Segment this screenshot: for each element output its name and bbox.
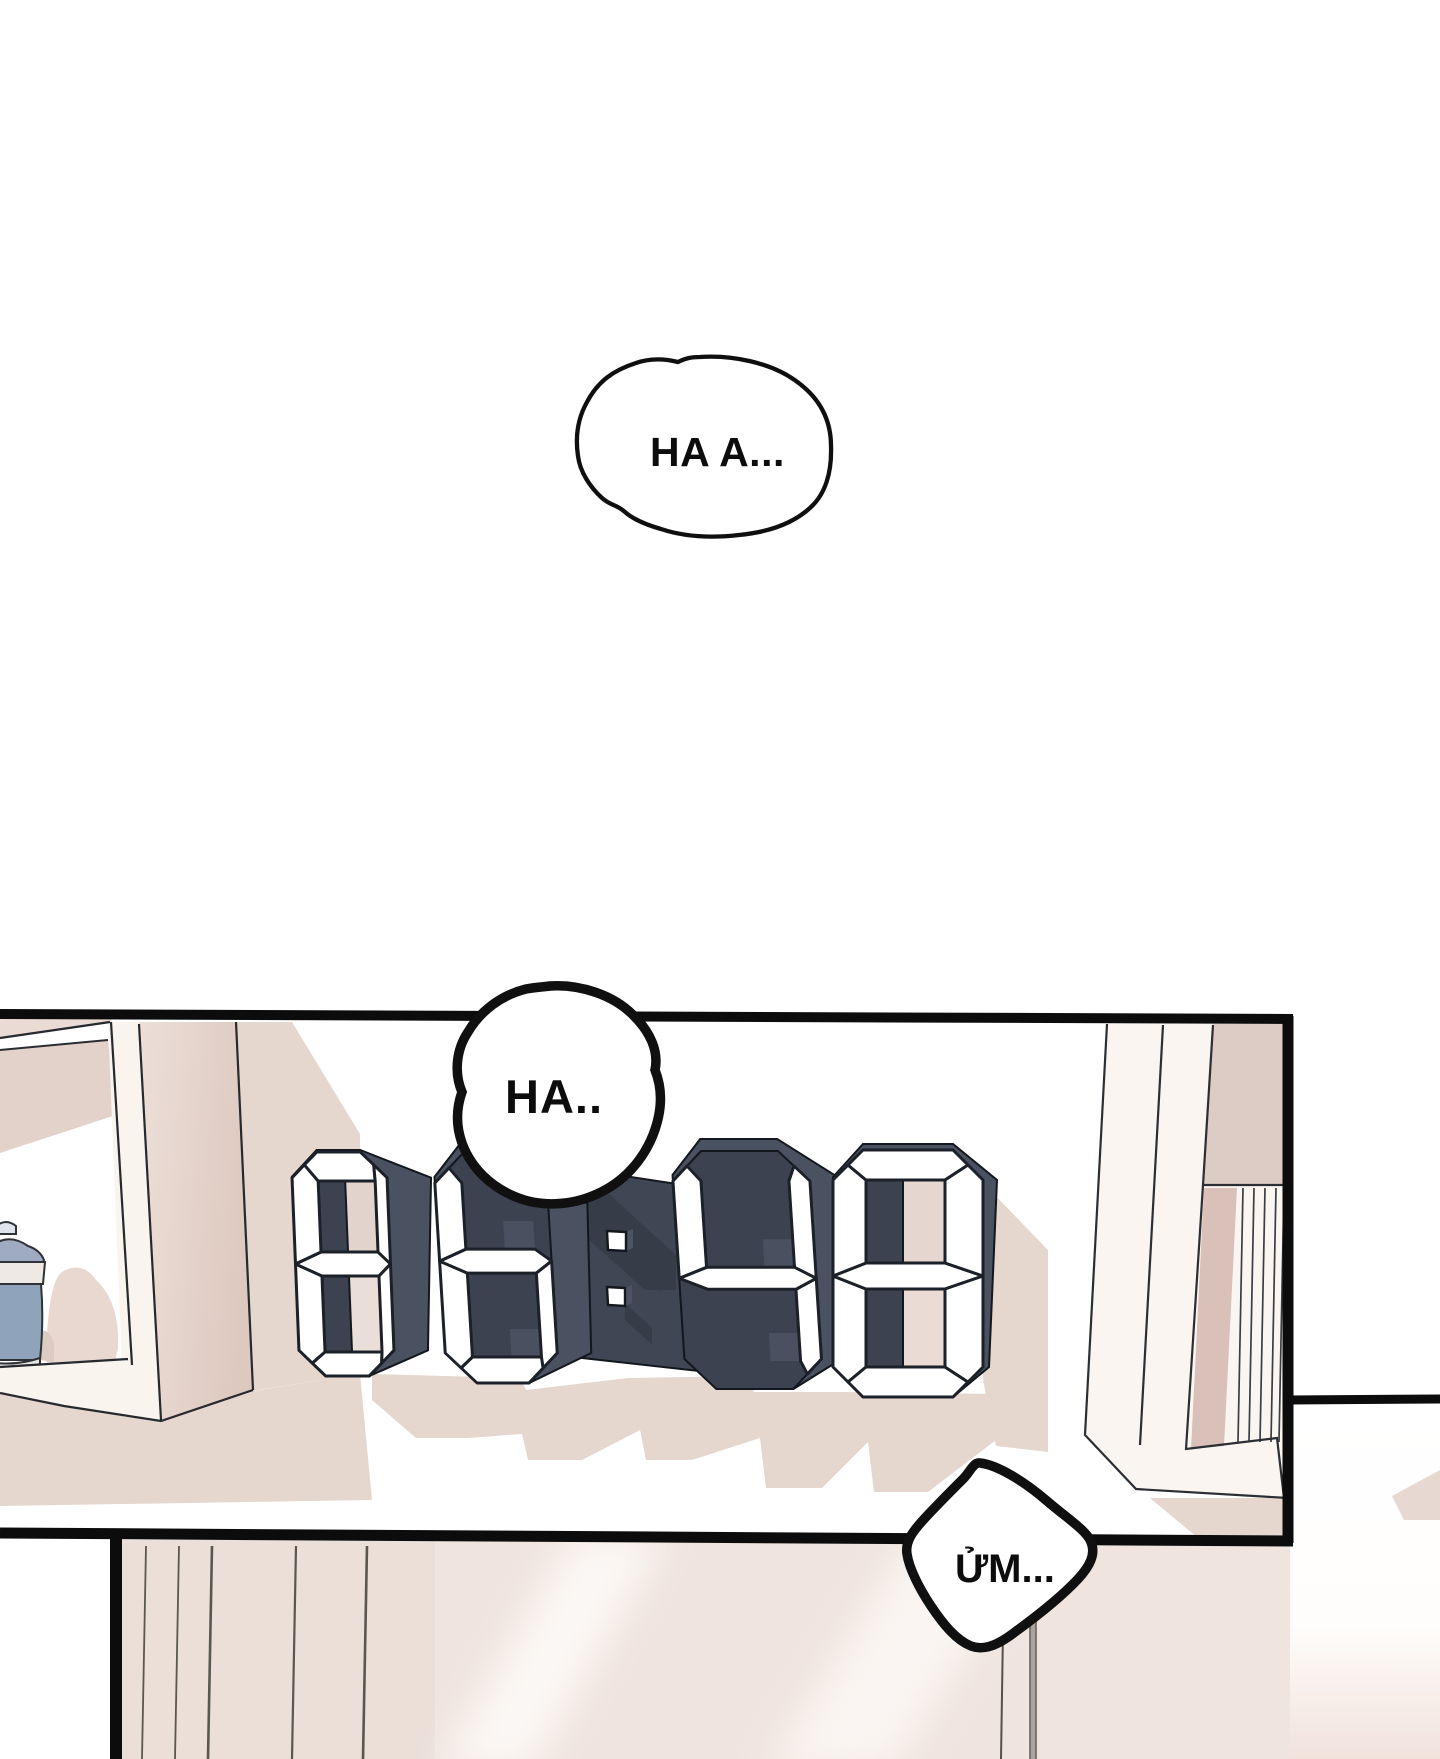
svg-text:ỬM...: ỬM...	[955, 1545, 1055, 1591]
svg-text:HA..: HA..	[505, 1070, 603, 1123]
svg-text:HA A...: HA A...	[650, 429, 785, 475]
